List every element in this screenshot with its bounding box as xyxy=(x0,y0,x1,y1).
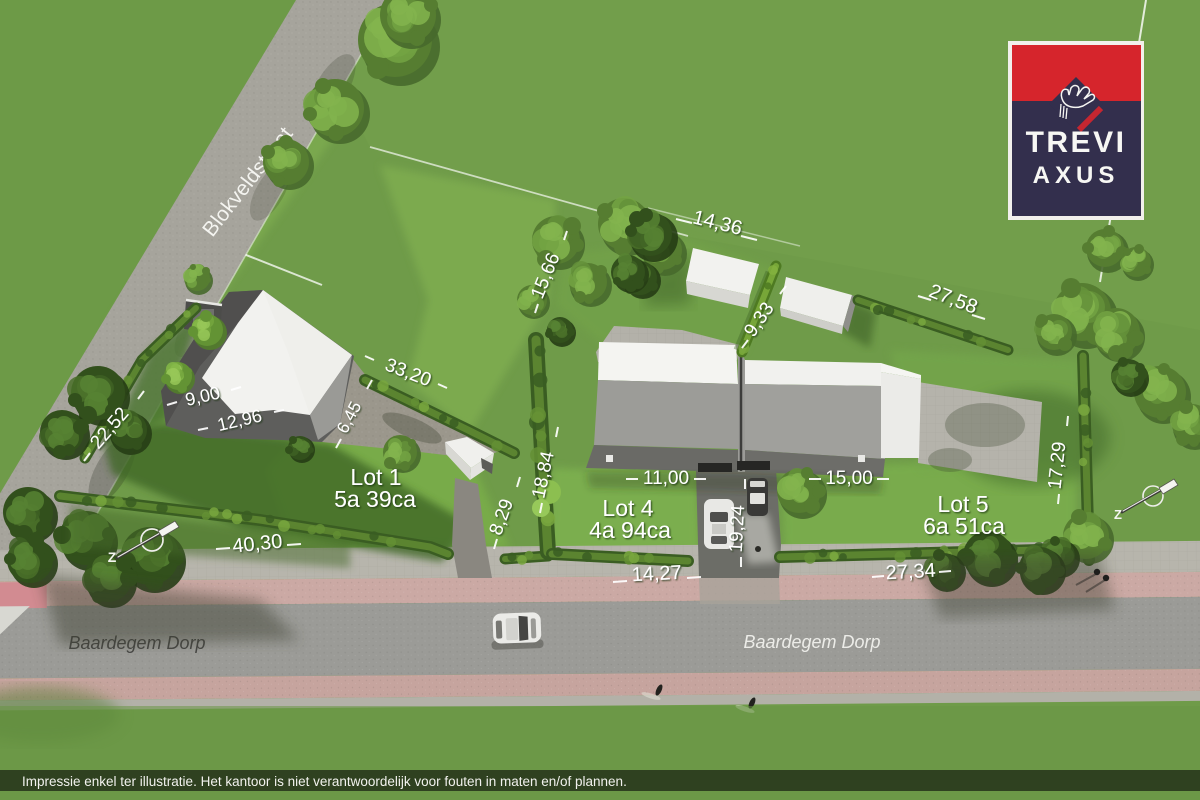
svg-text:Z: Z xyxy=(1114,507,1122,522)
svg-text:4a 94ca: 4a 94ca xyxy=(589,517,671,543)
svg-text:Z: Z xyxy=(108,549,117,565)
svg-text:19,24: 19,24 xyxy=(726,504,749,553)
svg-text:14,27: 14,27 xyxy=(631,562,682,587)
svg-text:6a 51ca: 6a 51ca xyxy=(923,513,1005,539)
svg-text:15,00: 15,00 xyxy=(825,468,873,489)
svg-text:11,00: 11,00 xyxy=(643,468,689,489)
svg-text:Impressie enkel ter illustrati: Impressie enkel ter illustratie. Het kan… xyxy=(22,774,627,789)
svg-text:Baardegem Dorp: Baardegem Dorp xyxy=(743,632,880,652)
svg-text:27,34: 27,34 xyxy=(885,560,936,585)
svg-text:5a 39ca: 5a 39ca xyxy=(334,486,416,512)
svg-text:TREVI: TREVI xyxy=(1026,126,1127,159)
svg-text:AXUS: AXUS xyxy=(1033,162,1120,189)
